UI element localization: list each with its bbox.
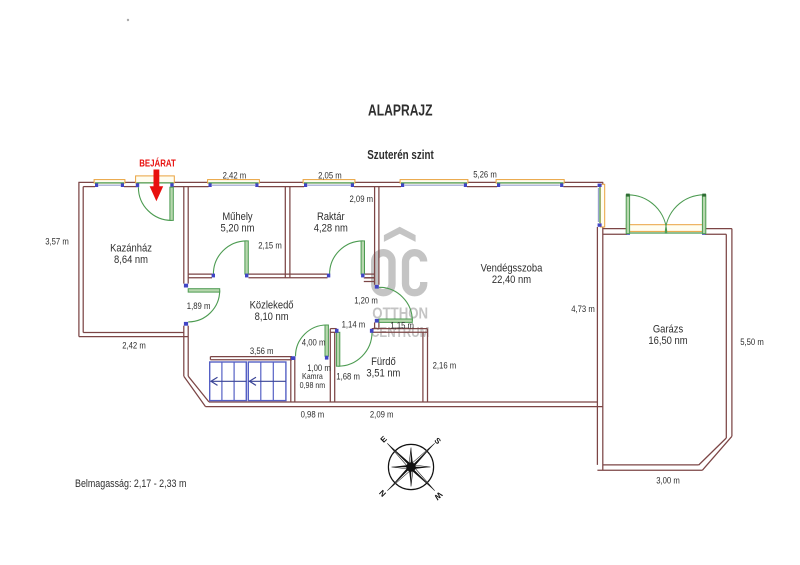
svg-text:1,89 m: 1,89 m <box>187 301 211 311</box>
svg-text:22,40 nm: 22,40 nm <box>492 274 531 286</box>
svg-text:1,20 m: 1,20 m <box>354 295 378 305</box>
svg-text:2,42 m: 2,42 m <box>122 341 146 351</box>
svg-text:1,00 m: 1,00 m <box>307 363 331 373</box>
svg-text:8,64 nm: 8,64 nm <box>114 254 148 266</box>
svg-text:BEJÁRAT: BEJÁRAT <box>139 157 176 169</box>
svg-text:0,98 nm: 0,98 nm <box>300 380 326 390</box>
svg-text:Műhely: Műhely <box>222 211 253 223</box>
svg-text:2,16 m: 2,16 m <box>433 361 457 371</box>
svg-text:Garázs: Garázs <box>653 324 684 336</box>
svg-text:3,00 m: 3,00 m <box>656 476 680 486</box>
svg-text:2,09 m: 2,09 m <box>350 194 374 204</box>
svg-text:16,50 nm: 16,50 nm <box>648 335 687 347</box>
svg-text:Kazánház: Kazánház <box>110 243 152 255</box>
svg-text:5,20 nm: 5,20 nm <box>221 223 255 235</box>
svg-text:1,14 m: 1,14 m <box>342 320 366 330</box>
svg-text:4,28 nm: 4,28 nm <box>314 223 348 235</box>
svg-text:8,10 nm: 8,10 nm <box>255 311 289 323</box>
svg-text:3,57 m: 3,57 m <box>45 237 69 247</box>
svg-text:5,26 m: 5,26 m <box>473 170 497 180</box>
svg-text:5,50 m: 5,50 m <box>740 337 764 347</box>
svg-text:1,68 m: 1,68 m <box>336 371 360 381</box>
svg-text:1,15 m: 1,15 m <box>390 321 414 331</box>
svg-text:2,42 m: 2,42 m <box>223 170 247 180</box>
svg-text:Szuterén szint: Szuterén szint <box>367 148 434 162</box>
svg-text:Közlekedő: Közlekedő <box>250 300 294 312</box>
svg-text:0,98 m: 0,98 m <box>301 410 325 420</box>
svg-text:4,00 m: 4,00 m <box>302 337 326 347</box>
svg-text:Raktár: Raktár <box>317 211 345 223</box>
svg-text:Vendégsszoba: Vendégsszoba <box>481 263 543 275</box>
svg-text:ALAPRAJZ: ALAPRAJZ <box>368 103 433 120</box>
svg-text:Belmagasság: 2,17 - 2,33 m: Belmagasság: 2,17 - 2,33 m <box>75 478 187 490</box>
svg-text:2,09 m: 2,09 m <box>370 410 394 420</box>
svg-text:3,51 nm: 3,51 nm <box>366 368 400 380</box>
svg-text:2,15 m: 2,15 m <box>258 241 282 251</box>
svg-text:3,56 m: 3,56 m <box>250 346 274 356</box>
svg-text:2,05 m: 2,05 m <box>318 170 342 180</box>
svg-text:Fürdő: Fürdő <box>371 356 396 368</box>
svg-text:4,73 m: 4,73 m <box>571 304 595 314</box>
